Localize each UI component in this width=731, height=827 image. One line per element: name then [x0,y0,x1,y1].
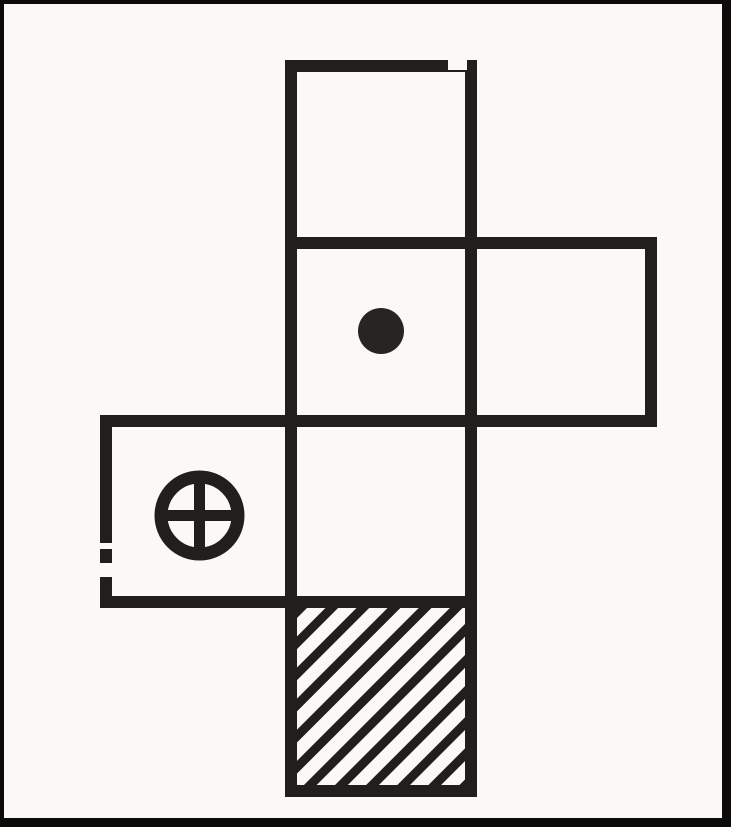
scan-artifact [99,563,113,577]
scan-artifact [100,543,112,549]
net-face-hatched [291,602,471,791]
border-frame [0,0,4,827]
border-frame [0,818,731,827]
circled-plus-icon [161,477,238,554]
scanned-figure-page [0,0,731,827]
scan-artifact [448,57,467,70]
border-frame [722,0,731,827]
cube-net-svg [0,0,731,827]
border-frame [0,0,731,4]
hatch-fill-icon [297,608,465,785]
dot-icon [358,308,404,354]
